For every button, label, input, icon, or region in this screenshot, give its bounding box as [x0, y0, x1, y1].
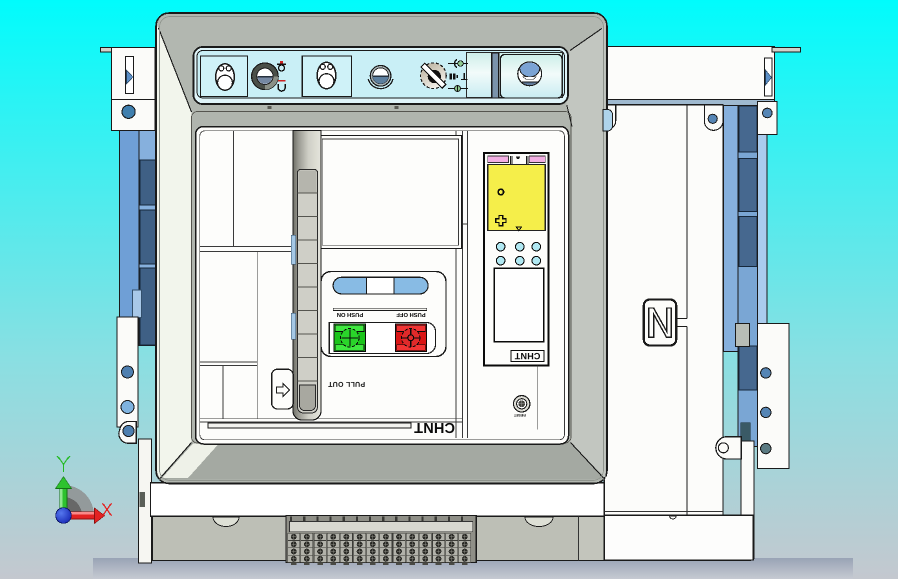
svg-text:PUSH ON: PUSH ON: [337, 311, 363, 318]
svg-text:CHNT: CHNT: [514, 351, 540, 361]
svg-text:PUSH OFF: PUSH OFF: [396, 311, 426, 318]
svg-text:CHNT: CHNT: [414, 419, 455, 435]
svg-text:RESET: RESET: [513, 413, 526, 417]
svg-text:PULL OUT: PULL OUT: [327, 380, 365, 387]
